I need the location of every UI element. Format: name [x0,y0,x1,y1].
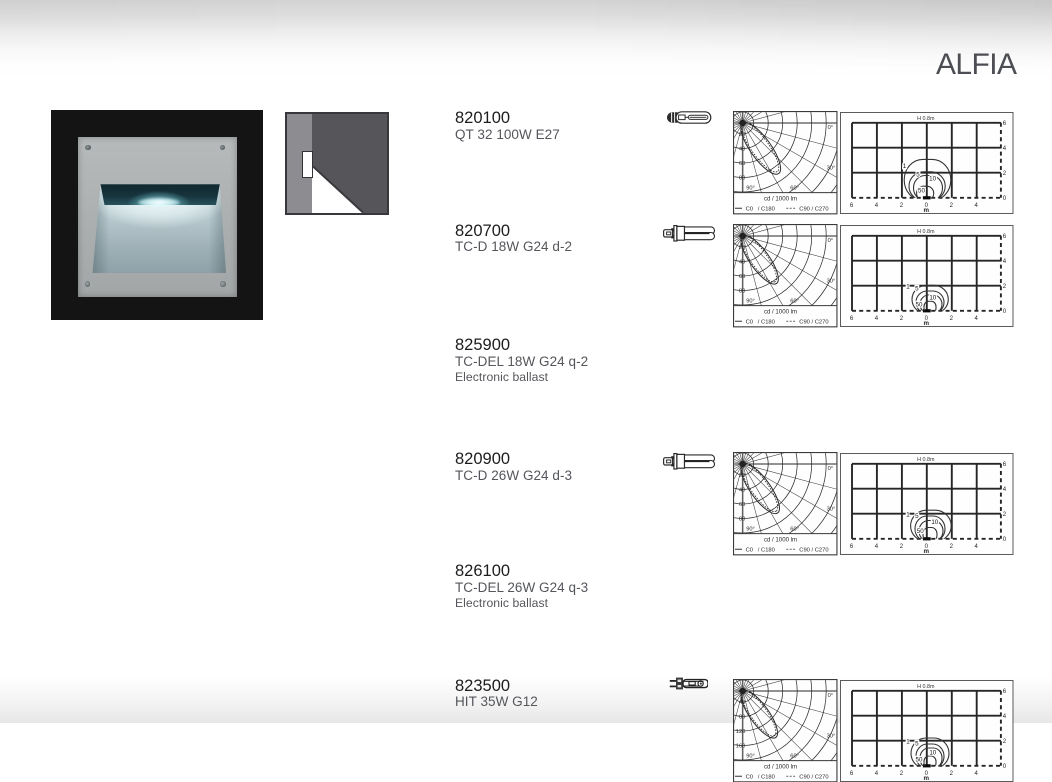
svg-text:cd / 1000 lm: cd / 1000 lm [764,763,797,770]
svg-text:60: 60 [739,274,745,280]
svg-text:30°: 30° [827,279,836,285]
svg-text:80: 80 [739,517,745,523]
svg-text:cd / 1000 lm: cd / 1000 lm [764,537,797,544]
svg-text:30°: 30° [827,507,836,513]
svg-text:C90 / C270: C90 / C270 [799,207,828,213]
svg-text:90°: 90° [746,186,755,192]
svg-text:10: 10 [931,519,938,526]
svg-text:C0 / C180: C0 / C180 [746,548,775,554]
svg-text:1: 1 [903,163,907,170]
svg-text:0°: 0° [828,693,833,699]
svg-text:m: m [924,207,930,214]
svg-text:60°: 60° [790,527,799,533]
svg-text:30°: 30° [827,733,836,739]
svg-text:80: 80 [739,289,745,295]
svg-text:m: m [924,548,930,555]
svg-text:120: 120 [736,729,746,735]
svg-text:10: 10 [929,294,936,301]
svg-text:C0 / C180: C0 / C180 [746,320,775,326]
svg-text:80: 80 [739,714,745,720]
svg-text:60°: 60° [790,753,799,759]
svg-text:cd / 1000 lm: cd / 1000 lm [764,309,797,316]
svg-text:90°: 90° [746,299,755,305]
svg-text:40: 40 [739,700,745,706]
svg-text:0°: 0° [828,126,833,132]
svg-text:1: 1 [906,283,910,290]
svg-text:0°: 0° [828,239,833,245]
svg-text:5: 5 [915,513,919,520]
svg-text:60: 60 [739,502,745,508]
svg-text:20: 20 [739,473,745,479]
svg-text:0°: 0° [828,466,833,472]
svg-text:C90 / C270: C90 / C270 [799,320,828,326]
svg-text:50: 50 [916,302,923,309]
svg-text:C0 / C180: C0 / C180 [746,207,775,213]
svg-text:m: m [924,320,930,327]
svg-text:5: 5 [915,286,919,293]
svg-text:160: 160 [736,743,746,749]
svg-text:5: 5 [915,740,919,747]
svg-text:1: 1 [906,738,910,745]
svg-text:H 0.8m: H 0.8m [917,684,935,690]
svg-text:50: 50 [918,187,925,194]
svg-text:H 0.8m: H 0.8m [917,116,935,122]
svg-text:20: 20 [739,132,745,138]
svg-text:60: 60 [739,161,745,167]
svg-text:m: m [924,775,930,782]
svg-text:5: 5 [916,171,920,178]
svg-text:C90 / C270: C90 / C270 [799,774,828,780]
svg-text:90°: 90° [746,753,755,759]
svg-text:50: 50 [916,756,923,763]
svg-text:60°: 60° [790,186,799,192]
svg-text:80: 80 [739,176,745,182]
svg-text:40: 40 [739,260,745,266]
svg-text:30°: 30° [827,166,836,172]
svg-text:40: 40 [739,147,745,153]
svg-text:50: 50 [917,528,924,535]
svg-text:60°: 60° [790,299,799,305]
svg-text:10: 10 [929,176,936,183]
svg-text:cd / 1000 lm: cd / 1000 lm [764,196,797,203]
svg-text:H 0.8m: H 0.8m [917,457,935,463]
svg-text:10: 10 [929,749,936,756]
svg-text:H 0.8m: H 0.8m [917,229,935,235]
svg-text:C90 / C270: C90 / C270 [799,548,828,554]
svg-text:1: 1 [906,511,910,518]
svg-text:20: 20 [739,245,745,251]
svg-text:40: 40 [739,488,745,494]
svg-text:90°: 90° [746,527,755,533]
svg-text:C0 / C180: C0 / C180 [746,774,775,780]
